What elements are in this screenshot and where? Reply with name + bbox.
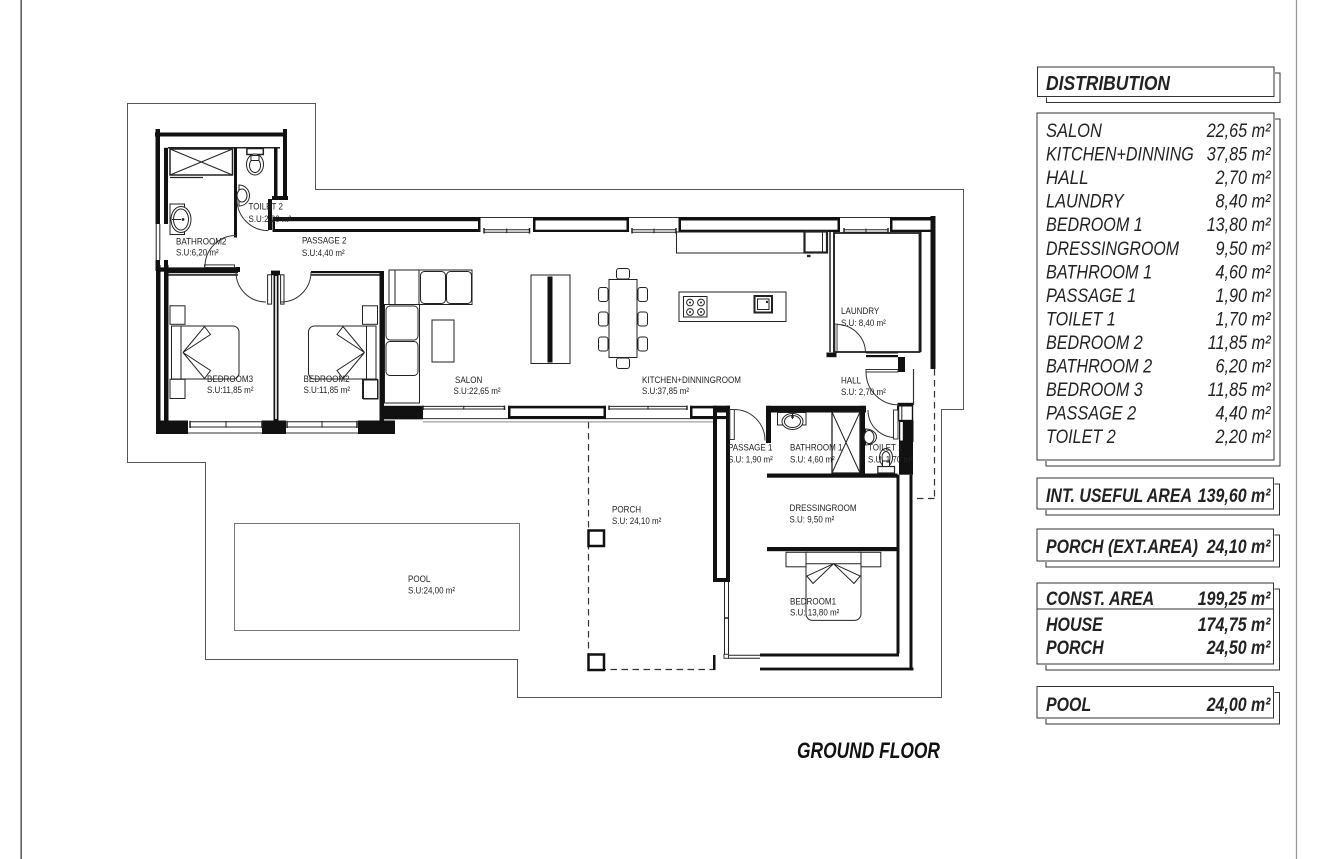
svg-text:24,50 m²: 24,50 m² xyxy=(1206,638,1271,659)
svg-text:HALL: HALL xyxy=(841,376,861,387)
svg-text:PORCH (EXT.AREA): PORCH (EXT.AREA) xyxy=(1046,537,1198,558)
svg-text:BATHROOM 1: BATHROOM 1 xyxy=(790,443,843,454)
svg-text:24,10 m²: 24,10 m² xyxy=(1206,537,1271,558)
svg-text:BEDROOM3: BEDROOM3 xyxy=(207,374,253,385)
svg-text:S.U:4,40 m²: S.U:4,40 m² xyxy=(302,248,345,259)
svg-text:9,50 m²: 9,50 m² xyxy=(1216,239,1272,260)
svg-text:HALL: HALL xyxy=(1046,168,1089,189)
svg-text:CONST. AREA: CONST. AREA xyxy=(1046,589,1154,610)
svg-text:KITCHEN+DINNINGROOM: KITCHEN+DINNINGROOM xyxy=(642,375,741,386)
svg-text:S.U:24,00 m²: S.U:24,00 m² xyxy=(408,586,455,597)
svg-text:139,60 m²: 139,60 m² xyxy=(1198,486,1271,507)
svg-text:11,85 m²: 11,85 m² xyxy=(1208,380,1271,401)
svg-text:PORCH: PORCH xyxy=(612,505,641,516)
svg-text:PASSAGE 1: PASSAGE 1 xyxy=(728,443,773,454)
svg-text:199,25 m²: 199,25 m² xyxy=(1198,589,1271,610)
svg-text:PASSAGE 2: PASSAGE 2 xyxy=(1046,404,1137,425)
svg-text:S.U:2,20 m²: S.U:2,20 m² xyxy=(249,214,292,225)
svg-text:8,40 m²: 8,40 m² xyxy=(1216,192,1272,213)
svg-text:LAUNDRY: LAUNDRY xyxy=(1046,192,1125,213)
svg-text:S.U: 9,50 m²: S.U: 9,50 m² xyxy=(790,515,835,526)
svg-text:2,70 m²: 2,70 m² xyxy=(1215,168,1271,189)
svg-text:BEDROOM 3: BEDROOM 3 xyxy=(1046,380,1143,401)
svg-text:TOILET 1: TOILET 1 xyxy=(868,443,902,454)
svg-text:TOILET 1: TOILET 1 xyxy=(1046,309,1116,330)
svg-text:BATHROOM2: BATHROOM2 xyxy=(176,237,226,248)
svg-text:174,75 m²: 174,75 m² xyxy=(1198,615,1271,636)
svg-text:24,00 m²: 24,00 m² xyxy=(1206,695,1271,716)
svg-text:6,20 m²: 6,20 m² xyxy=(1216,357,1272,378)
svg-text:POOL: POOL xyxy=(1046,695,1091,716)
svg-text:BATHROOM 2: BATHROOM 2 xyxy=(1046,357,1152,378)
svg-text:S.U:11,85 m²: S.U:11,85 m² xyxy=(207,385,254,396)
svg-text:S.U: 24,10 m²: S.U: 24,10 m² xyxy=(612,516,661,527)
svg-text:TOILET 2: TOILET 2 xyxy=(1046,427,1116,448)
svg-text:DRESSINGROOM: DRESSINGROOM xyxy=(790,503,857,514)
svg-text:DRESSINGROOM: DRESSINGROOM xyxy=(1046,239,1179,260)
svg-text:11,85 m²: 11,85 m² xyxy=(1208,333,1271,354)
svg-text:BEDROOM2: BEDROOM2 xyxy=(304,374,350,385)
svg-text:POOL: POOL xyxy=(408,574,430,585)
svg-text:BEDROOM1: BEDROOM1 xyxy=(790,597,836,608)
svg-text:INT. USEFUL AREA: INT. USEFUL AREA xyxy=(1046,486,1192,507)
svg-text:2,20 m²: 2,20 m² xyxy=(1215,427,1271,448)
svg-text:S.U: 4,60 m²: S.U: 4,60 m² xyxy=(790,455,835,466)
svg-text:22,65 m²: 22,65 m² xyxy=(1206,121,1271,142)
svg-text:HOUSE: HOUSE xyxy=(1046,615,1104,636)
svg-text:SALON: SALON xyxy=(455,375,482,386)
svg-text:PORCH: PORCH xyxy=(1046,638,1105,659)
svg-text:BATHROOM 1: BATHROOM 1 xyxy=(1046,262,1152,283)
svg-text:S.U: 13,80 m²: S.U: 13,80 m² xyxy=(790,608,839,619)
svg-text:S.U: 1,90 m²: S.U: 1,90 m² xyxy=(728,455,773,466)
svg-text:1,70 m²: 1,70 m² xyxy=(1216,309,1272,330)
svg-text:SALON: SALON xyxy=(1046,121,1102,142)
svg-text:TOILET 2: TOILET 2 xyxy=(249,202,283,213)
svg-text:S.U:6,20 m²: S.U:6,20 m² xyxy=(176,248,219,259)
svg-text:BEDROOM 1: BEDROOM 1 xyxy=(1046,215,1143,236)
svg-text:13,80 m²: 13,80 m² xyxy=(1207,215,1271,236)
svg-text:4,60 m²: 4,60 m² xyxy=(1216,262,1272,283)
svg-text:PASSAGE 1: PASSAGE 1 xyxy=(1046,286,1136,307)
svg-text:S.U: 8,40 m²: S.U: 8,40 m² xyxy=(841,318,886,329)
svg-text:DISTRIBUTION: DISTRIBUTION xyxy=(1046,73,1170,95)
svg-text:S.U: 1,70 m²: S.U: 1,70 m² xyxy=(868,455,913,466)
svg-text:S.U:11,85 m²: S.U:11,85 m² xyxy=(304,385,351,396)
svg-text:KITCHEN+DINNING: KITCHEN+DINNING xyxy=(1046,145,1194,166)
svg-text:PASSAGE 2: PASSAGE 2 xyxy=(302,236,347,247)
svg-text:S.U:37,85 m²: S.U:37,85 m² xyxy=(642,386,689,397)
svg-text:BEDROOM 2: BEDROOM 2 xyxy=(1046,333,1143,354)
svg-text:S.U:22,65 m²: S.U:22,65 m² xyxy=(454,386,501,397)
svg-text:4,40 m²: 4,40 m² xyxy=(1216,404,1272,425)
svg-text:LAUNDRY: LAUNDRY xyxy=(841,306,880,317)
svg-text:GROUND FLOOR: GROUND FLOOR xyxy=(797,738,941,763)
svg-text:S.U: 2,70 m²: S.U: 2,70 m² xyxy=(841,387,886,398)
svg-text:1,90 m²: 1,90 m² xyxy=(1216,286,1272,307)
svg-text:37,85 m²: 37,85 m² xyxy=(1207,145,1271,166)
